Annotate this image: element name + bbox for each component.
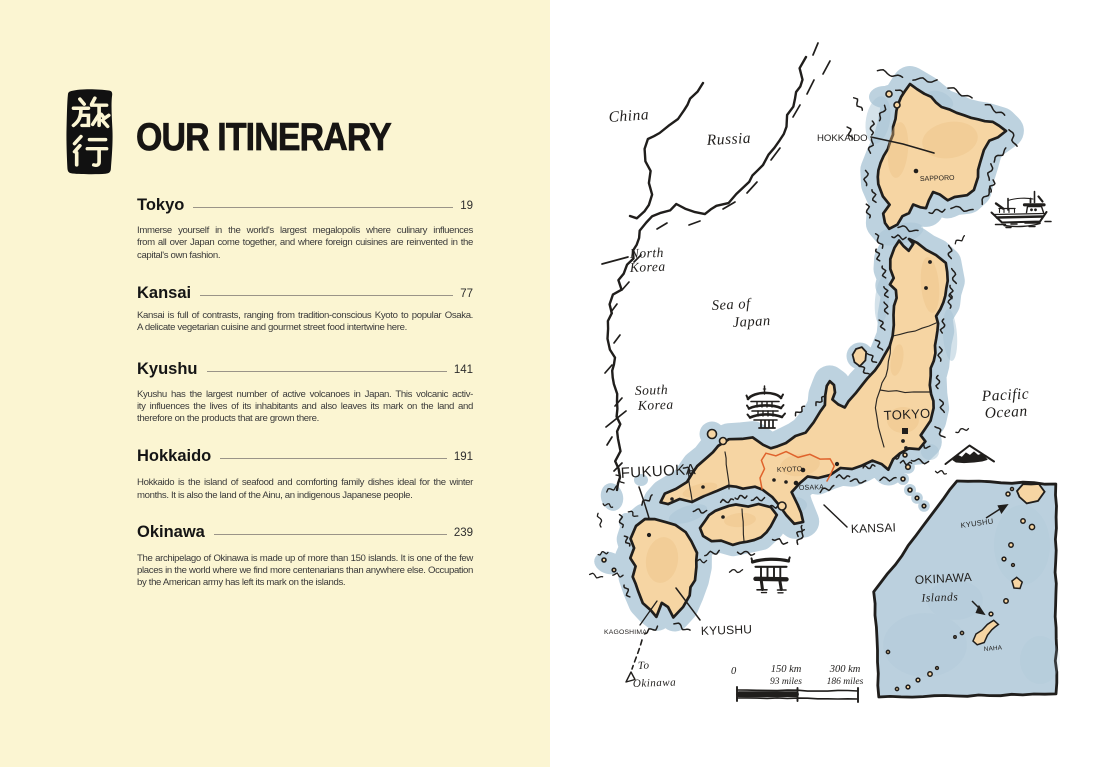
- svg-text:KYOTO: KYOTO: [777, 466, 803, 474]
- svg-text:To: To: [638, 660, 650, 672]
- svg-text:KAGOSHIMA: KAGOSHIMA: [604, 629, 647, 636]
- svg-text:South: South: [635, 382, 669, 398]
- svg-text:Okinawa: Okinawa: [633, 676, 677, 690]
- svg-text:China: China: [608, 106, 649, 126]
- svg-text:Ocean: Ocean: [984, 403, 1028, 422]
- svg-text:KYUSHU: KYUSHU: [701, 622, 753, 638]
- svg-text:Sea of: Sea of: [711, 296, 752, 314]
- svg-text:OKINAWA: OKINAWA: [914, 570, 972, 587]
- svg-text:Korea: Korea: [637, 397, 674, 413]
- svg-text:300 km: 300 km: [829, 664, 861, 675]
- svg-text:Russia: Russia: [705, 130, 751, 149]
- svg-text:186 miles: 186 miles: [827, 677, 864, 687]
- svg-text:KANSAI: KANSAI: [851, 520, 897, 536]
- svg-text:150 km: 150 km: [771, 664, 802, 675]
- svg-text:SAPPORO: SAPPORO: [920, 175, 955, 183]
- svg-text:Islands: Islands: [920, 591, 958, 604]
- svg-text:OSAKA: OSAKA: [799, 484, 824, 492]
- svg-text:0: 0: [731, 666, 737, 677]
- svg-text:93 miles: 93 miles: [770, 677, 802, 687]
- svg-text:TOKYO: TOKYO: [883, 406, 931, 423]
- svg-text:Japan: Japan: [732, 313, 771, 331]
- svg-text:Korea: Korea: [629, 259, 666, 275]
- svg-text:HOKKAIDO: HOKKAIDO: [817, 133, 868, 144]
